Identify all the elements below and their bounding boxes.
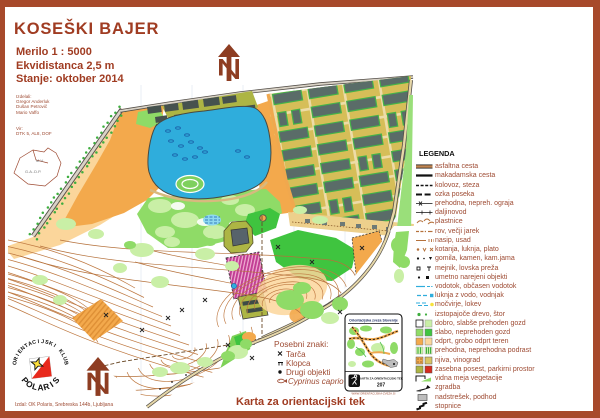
svg-text:207: 207 bbox=[377, 383, 386, 389]
svg-text:I: I bbox=[52, 343, 57, 349]
svg-text:KARTA ZA ORIENTACIJSKI TEK: KARTA ZA ORIENTACIJSKI TEK bbox=[359, 377, 404, 381]
svg-text:I: I bbox=[37, 339, 39, 345]
svg-text:G.A..D.P.: G.A..D.P. bbox=[25, 169, 41, 174]
svg-text:Orientacijska zveza Slovenije: Orientacijska zveza Slovenije bbox=[349, 318, 398, 322]
svg-text:WWW.ORIENTACIJSKA-ZVEZA.SI: WWW.ORIENTACIJSKA-ZVEZA.SI bbox=[352, 391, 396, 395]
svg-text:M.V.: M.V. bbox=[36, 158, 44, 163]
svg-text:C: C bbox=[32, 339, 37, 346]
